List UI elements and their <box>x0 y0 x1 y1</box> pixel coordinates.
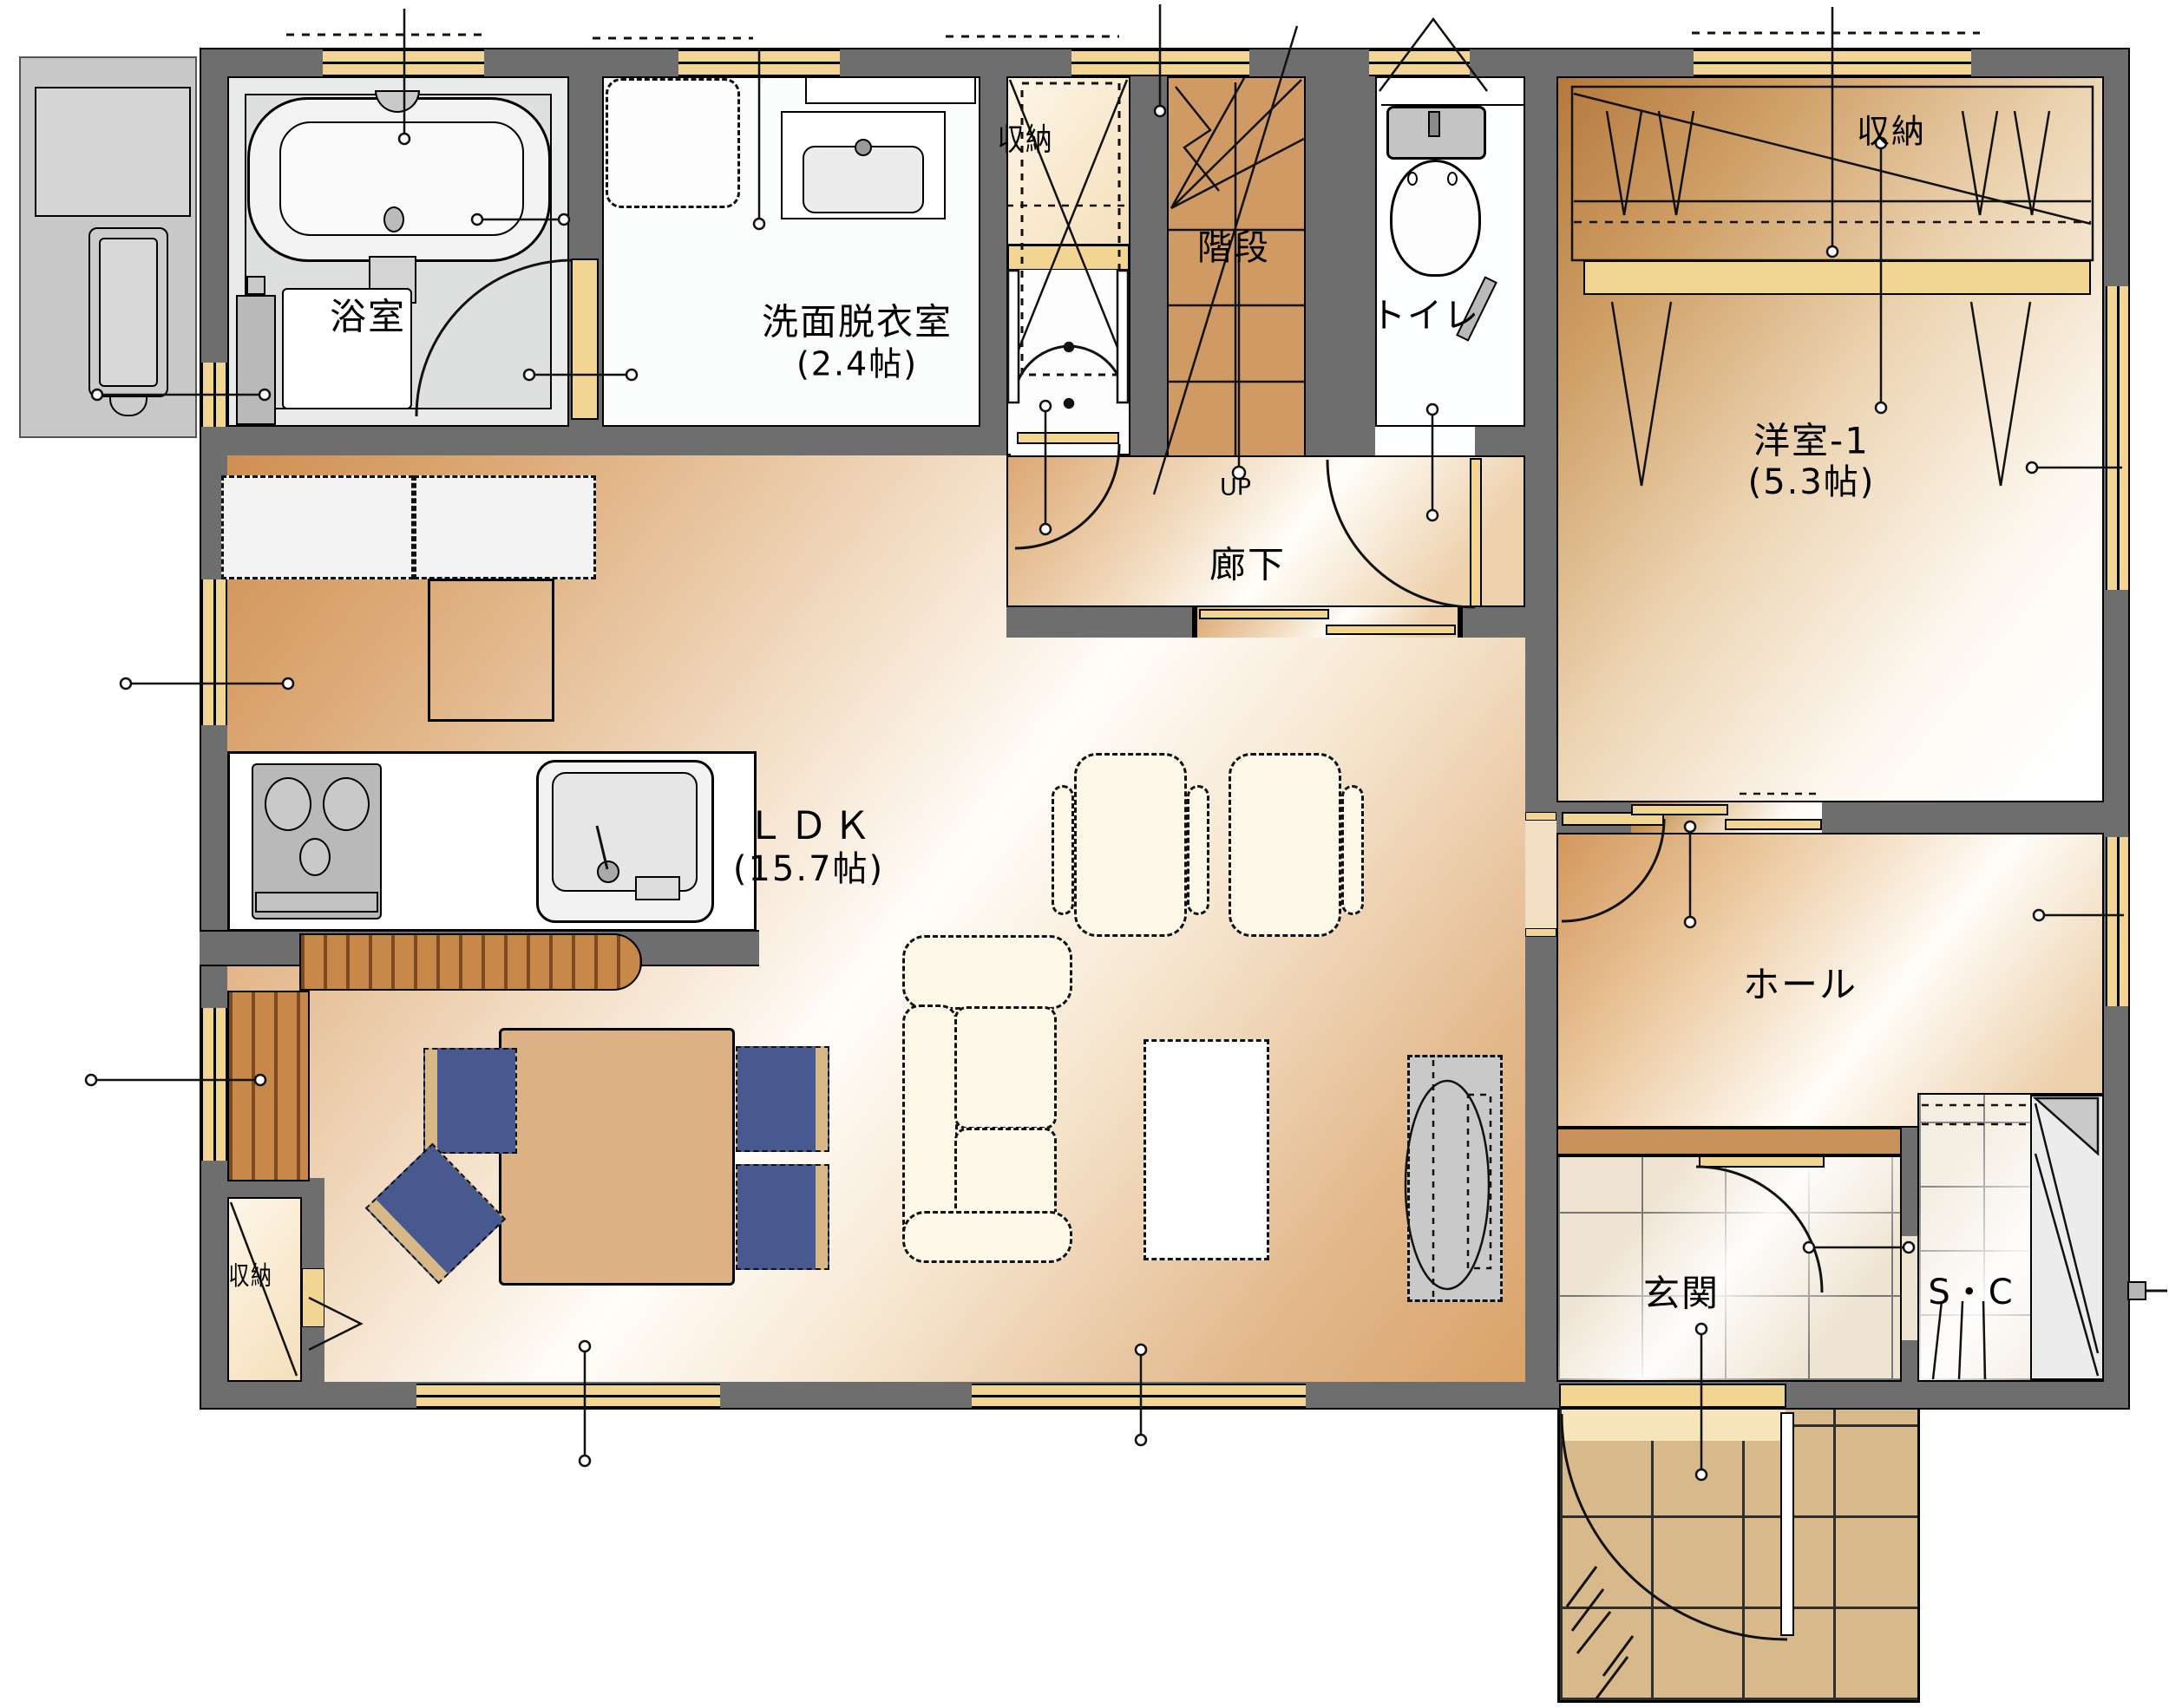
window-washroom-top <box>678 49 840 76</box>
sink-drain-tray <box>635 876 680 900</box>
shower-column <box>236 295 276 425</box>
ac-outdoor-unit-grille <box>99 238 158 387</box>
toilet-door-leaf <box>1470 458 1482 607</box>
stove-burner-right <box>323 777 370 831</box>
hall-door-jamb-top <box>1525 812 1556 821</box>
bathtub-drain <box>383 206 404 232</box>
armchair-2-arm-right <box>1341 785 1364 915</box>
front-door-threshold <box>1559 1384 1786 1408</box>
corridor-slider-leaf-1 <box>1199 609 1329 619</box>
stove-burner-small <box>299 838 331 876</box>
room-size-ldk: (15.7帖) <box>733 841 884 891</box>
room-size-western-room: (5.3帖) <box>1748 454 1876 504</box>
stove-base <box>255 892 378 913</box>
stove-burner-left <box>265 777 311 831</box>
entrance-inner-door-leaf <box>1699 1155 1825 1168</box>
window-western-room-top <box>1694 49 1971 76</box>
floor-rug-outline <box>428 579 554 722</box>
room-label-toilet: トイレ <box>1371 287 1480 337</box>
cupboard-space <box>414 475 596 579</box>
room-label-western-closet: 収納 <box>1857 105 1926 153</box>
porch-threshold-light <box>1562 1410 1786 1441</box>
stair-closet-box <box>1006 76 1130 245</box>
room-label-entrance: 玄関 <box>1643 1265 1720 1318</box>
sofa-corner-seat <box>902 935 1072 1010</box>
window-bathroom-left <box>201 363 227 427</box>
equipment-tank-unit <box>35 87 191 217</box>
wood-slat-cabinet <box>227 991 310 1181</box>
floor-entrance <box>1556 1155 1902 1382</box>
wall-cap-1 <box>1192 607 1197 638</box>
room-label-bathroom: 浴室 <box>330 288 406 341</box>
sc-partition-wall-upper <box>1902 1128 1917 1236</box>
window-stairs-top <box>1071 49 1249 76</box>
toilet-bowl <box>1390 160 1481 277</box>
dining-chair-1 <box>423 1048 517 1154</box>
sink-faucet <box>597 861 619 883</box>
washroom-shelf <box>805 76 976 104</box>
window-kitchen-left <box>201 579 227 725</box>
toilet-bolt-left <box>1407 172 1418 186</box>
window-bathroom-top <box>323 49 484 76</box>
room-label-corridor: 廊下 <box>1209 536 1286 589</box>
toilet-bolt-right <box>1447 172 1458 186</box>
stair-closet-track <box>1008 245 1129 270</box>
stairs-up-label: UP <box>1220 474 1251 501</box>
dining-chair-2 <box>736 1046 829 1152</box>
window-dining-left <box>201 1008 227 1161</box>
bathroom-door-leaf <box>571 258 599 420</box>
ldk-closet-door <box>302 1268 324 1327</box>
outdoor-faucet-icon <box>2127 1281 2146 1300</box>
room-size-washroom: (2.4帖) <box>796 337 918 385</box>
entrance-porch <box>1557 1410 1920 1703</box>
hall-door-jamb-bottom <box>1525 928 1556 937</box>
armchair-1 <box>1074 753 1187 937</box>
tv-board <box>1407 1055 1503 1302</box>
dining-chair-3 <box>736 1164 829 1270</box>
shower-head <box>246 276 265 295</box>
dining-table <box>499 1028 735 1286</box>
washing-machine-space <box>606 78 740 208</box>
vanity-faucet <box>855 139 872 156</box>
room-label-stair-closet: 収納 <box>998 115 1054 160</box>
entrance-step-edge <box>1556 1128 1902 1155</box>
hall-door-opening <box>1525 820 1556 933</box>
window-ldk-bottom-left <box>416 1384 720 1408</box>
washroom-door-leaf <box>1017 432 1119 444</box>
corridor-slider-leaf-2 <box>1326 625 1456 635</box>
sc-partition-wall-lower <box>1902 1340 1917 1382</box>
sofa-cushion-1 <box>954 1006 1057 1129</box>
floor-plan-canvas: 浴室 洗面脱衣室 (2.4帖) 収納 階段 UP トイレ 収納 洋室-1 (5.… <box>0 0 2169 1708</box>
toilet-shelf <box>1381 78 1524 106</box>
toilet-door-opening <box>1375 427 1475 455</box>
window-western-room-right <box>2106 286 2130 590</box>
sc-entrance-opening <box>1902 1236 1917 1340</box>
coffee-table <box>1143 1039 1269 1260</box>
window-toilet-top <box>1369 49 1470 76</box>
wall-cap-2 <box>1458 607 1463 638</box>
sc-shoe-shelf <box>2030 1095 2104 1380</box>
refrigerator-space <box>221 475 414 579</box>
window-ldk-bottom-right <box>972 1384 1306 1408</box>
toilet-flush-handle <box>1428 111 1440 137</box>
kitchen-counter-bar <box>299 933 642 991</box>
room-label-hall: ホール <box>1743 956 1858 1009</box>
room-label-ldk-closet: 収納 <box>228 1254 272 1292</box>
armchair-1-arm-right <box>1187 785 1209 915</box>
western-closet-track <box>1583 260 2091 295</box>
front-door-leaf <box>1780 1412 1794 1636</box>
armchair-1-arm-left <box>1052 785 1074 915</box>
western-slider-leaf-2 <box>1725 819 1822 830</box>
room-label-stairs: 階段 <box>1197 219 1270 270</box>
room-label-shoe-closet: S・C <box>1928 1264 2014 1314</box>
kitchen-sink-basin <box>552 772 698 892</box>
armchair-2 <box>1229 753 1341 937</box>
sofa-arm-bottom <box>902 1211 1072 1263</box>
window-hall-right <box>2106 837 2130 1006</box>
western-slider-leaf-1 <box>1631 804 1728 815</box>
